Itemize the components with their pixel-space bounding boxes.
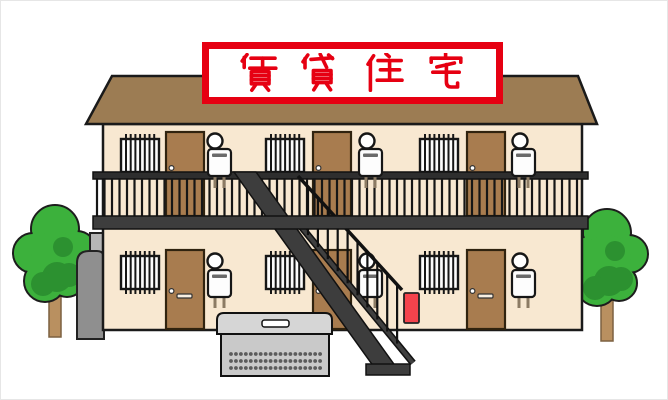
sign-char-4 <box>426 53 466 93</box>
vent-dot <box>244 366 248 370</box>
door-knob <box>470 289 475 294</box>
vent-dot <box>244 359 248 363</box>
window-2f-3 <box>420 134 458 177</box>
porch-light-2f-3 <box>513 134 528 149</box>
vent-dot <box>249 366 253 370</box>
rental-sign: 賃貸住宅 <box>202 42 503 104</box>
vent-dot <box>318 366 322 370</box>
window-2f-1 <box>121 134 159 177</box>
door-mail-slot <box>177 294 192 298</box>
heater-body <box>512 270 535 297</box>
vent-dot <box>303 366 307 370</box>
door-1f-1 <box>166 250 204 329</box>
door-knob <box>169 166 174 171</box>
vent-dot <box>308 352 312 356</box>
vent-dot <box>279 352 283 356</box>
sign-char-3 <box>364 53 404 93</box>
vent-dot <box>274 352 278 356</box>
window-1f-3 <box>420 251 458 294</box>
vent-dot <box>279 366 283 370</box>
vent-dot <box>254 366 258 370</box>
sign-char-1 <box>239 53 279 93</box>
heater-body <box>359 270 382 297</box>
vent-dot <box>298 366 302 370</box>
vent-dot <box>284 359 288 363</box>
door-1f-3 <box>467 250 505 329</box>
vent-dot <box>254 359 258 363</box>
vent-dot <box>298 352 302 356</box>
porch-light-2f-1 <box>208 134 223 149</box>
porch-light-1f-3 <box>513 254 528 269</box>
vent-dot <box>279 359 283 363</box>
vent-dot <box>318 352 322 356</box>
vent-dot <box>259 366 263 370</box>
vent-dot <box>264 366 268 370</box>
vent-dot <box>308 359 312 363</box>
vent-dot <box>249 352 253 356</box>
vent-dot <box>249 359 253 363</box>
tree-foliage-shade <box>605 241 625 261</box>
porch-light-1f-1 <box>208 254 223 269</box>
heater-vent <box>363 154 378 158</box>
heater-vent <box>363 275 378 279</box>
garbage-box-handle <box>262 320 289 327</box>
heater-vent <box>516 154 531 158</box>
vent-dot <box>244 352 248 356</box>
vent-dot <box>303 359 307 363</box>
vent-dot <box>234 366 238 370</box>
vent-dot <box>298 359 302 363</box>
heater-vent <box>212 275 227 279</box>
vent-dot <box>229 352 233 356</box>
vent-dot <box>293 352 297 356</box>
vent-dot <box>254 352 258 356</box>
vent-dot <box>289 352 293 356</box>
lp-gas-tank <box>77 251 104 339</box>
heater-vent <box>212 154 227 158</box>
tree-foliage-shade <box>609 267 633 291</box>
tree-foliage-shade <box>31 272 55 296</box>
porch-light-2f-2 <box>360 134 375 149</box>
heater-body <box>512 149 535 176</box>
vent-dot <box>308 366 312 370</box>
vent-dot <box>229 359 233 363</box>
vent-dot <box>318 359 322 363</box>
vent-dot <box>284 366 288 370</box>
vent-dot <box>289 366 293 370</box>
vent-dot <box>234 359 238 363</box>
tree-foliage-shade <box>53 237 73 257</box>
vent-dot <box>274 359 278 363</box>
heater-body <box>208 149 231 176</box>
window-1f-1 <box>121 251 159 294</box>
vent-dot <box>264 352 268 356</box>
vent-dot <box>313 352 317 356</box>
door-knob <box>470 166 475 171</box>
door-knob <box>169 289 174 294</box>
vent-dot <box>293 366 297 370</box>
vent-dot <box>259 352 263 356</box>
heater-body <box>359 149 382 176</box>
tree-foliage-shade <box>583 276 607 300</box>
vent-dot <box>293 359 297 363</box>
window-2f-2 <box>266 134 304 177</box>
vent-dot <box>239 352 243 356</box>
vent-dot <box>289 359 293 363</box>
vent-dot <box>303 352 307 356</box>
rental-housing-illustration: 賃貸住宅 <box>0 0 668 400</box>
vent-dot <box>284 352 288 356</box>
garbage-collection-box <box>217 313 332 376</box>
vent-dot <box>264 359 268 363</box>
vent-dot <box>239 359 243 363</box>
door-mail-slot <box>478 294 493 298</box>
vent-dot <box>229 366 233 370</box>
vent-dot <box>274 366 278 370</box>
fire-extinguisher-box <box>404 293 419 323</box>
vent-dot <box>234 352 238 356</box>
vent-dot <box>239 366 243 370</box>
heater-vent <box>516 275 531 279</box>
vent-dot <box>313 366 317 370</box>
vent-dot <box>259 359 263 363</box>
vent-dot <box>269 352 273 356</box>
stair-foot <box>366 364 410 375</box>
balcony-floor-slab <box>93 216 588 229</box>
door-knob <box>316 166 321 171</box>
vent-dot <box>269 366 273 370</box>
heater-body <box>208 270 231 297</box>
sign-char-2 <box>301 53 341 93</box>
vent-dot <box>269 359 273 363</box>
vent-dot <box>313 359 317 363</box>
